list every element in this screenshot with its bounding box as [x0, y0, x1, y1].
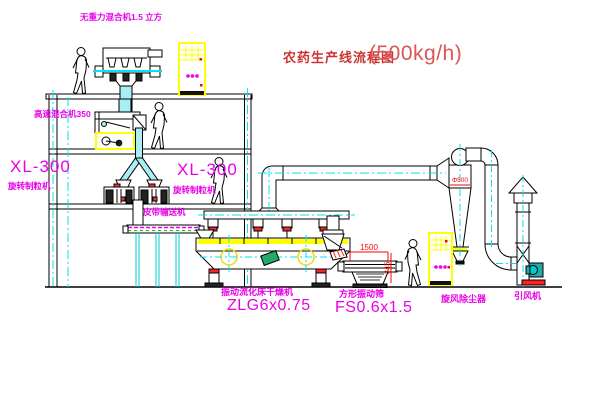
label-screen-model: FS0.6x1.5: [335, 300, 412, 316]
label-granulator-left-model: XL-300: [10, 158, 71, 175]
control-knobs-icon: [186, 74, 199, 78]
label-dryer-model: ZLG6x0.75: [227, 298, 311, 314]
vibrating-screen-machine: [338, 261, 402, 288]
control-cabinet-top: [179, 43, 205, 95]
control-knobs-icon: [434, 265, 447, 269]
person-icon: [151, 103, 167, 149]
label-screen-name: 方形振动筛: [339, 290, 384, 299]
screen-length-dim: 1500: [360, 243, 378, 252]
label-belt-conveyor: 皮带输送机: [143, 208, 186, 217]
label-high-speed-mixer: 高速混合机350: [34, 110, 91, 119]
label-gravity-mixer: 无重力混合机1.5 立方: [80, 13, 162, 22]
screen-height-dim: 345: [383, 262, 392, 275]
label-fan: 引风机: [514, 292, 541, 301]
granulator-left: [104, 184, 134, 204]
person-icon: [73, 48, 89, 94]
belt-conveyor-machine: [123, 225, 204, 287]
label-granulator-right-model: XL-300: [177, 161, 238, 178]
control-cabinet-right: [429, 233, 452, 285]
discharge-chute: [133, 200, 143, 226]
person-icon: [405, 240, 421, 286]
label-cyclone: 旋风除尘器: [441, 295, 486, 304]
label-granulator-right-name: 旋转制粒机: [173, 186, 216, 195]
diagram-title-capacity: (500kg/h): [369, 43, 462, 64]
exhaust-duct: [257, 158, 449, 213]
cyclone-dia-dim: Φ500: [452, 177, 468, 184]
cyclone-outlet-pipe: [466, 148, 521, 270]
cad-flow-diagram: 1500 345 Φ500: [0, 0, 600, 403]
label-granulator-left-name: 旋转制粒机: [8, 182, 51, 191]
label-dryer-name: 振动流化床干燥机: [221, 288, 293, 297]
